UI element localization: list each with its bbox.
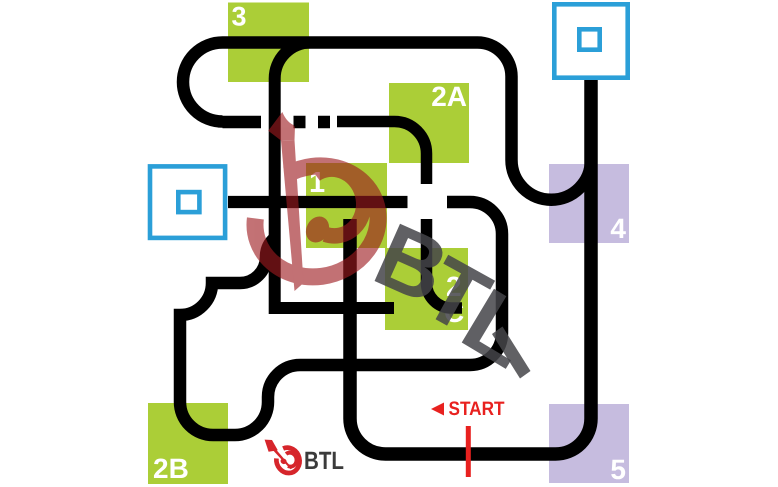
- svg-text:4: 4: [610, 213, 626, 244]
- svg-text:2B: 2B: [153, 453, 189, 484]
- svg-text:START: START: [449, 398, 505, 420]
- svg-text:2A: 2A: [431, 81, 467, 112]
- svg-text:3: 3: [232, 2, 247, 32]
- svg-text:5: 5: [610, 454, 626, 485]
- svg-text:BTL: BTL: [304, 447, 344, 475]
